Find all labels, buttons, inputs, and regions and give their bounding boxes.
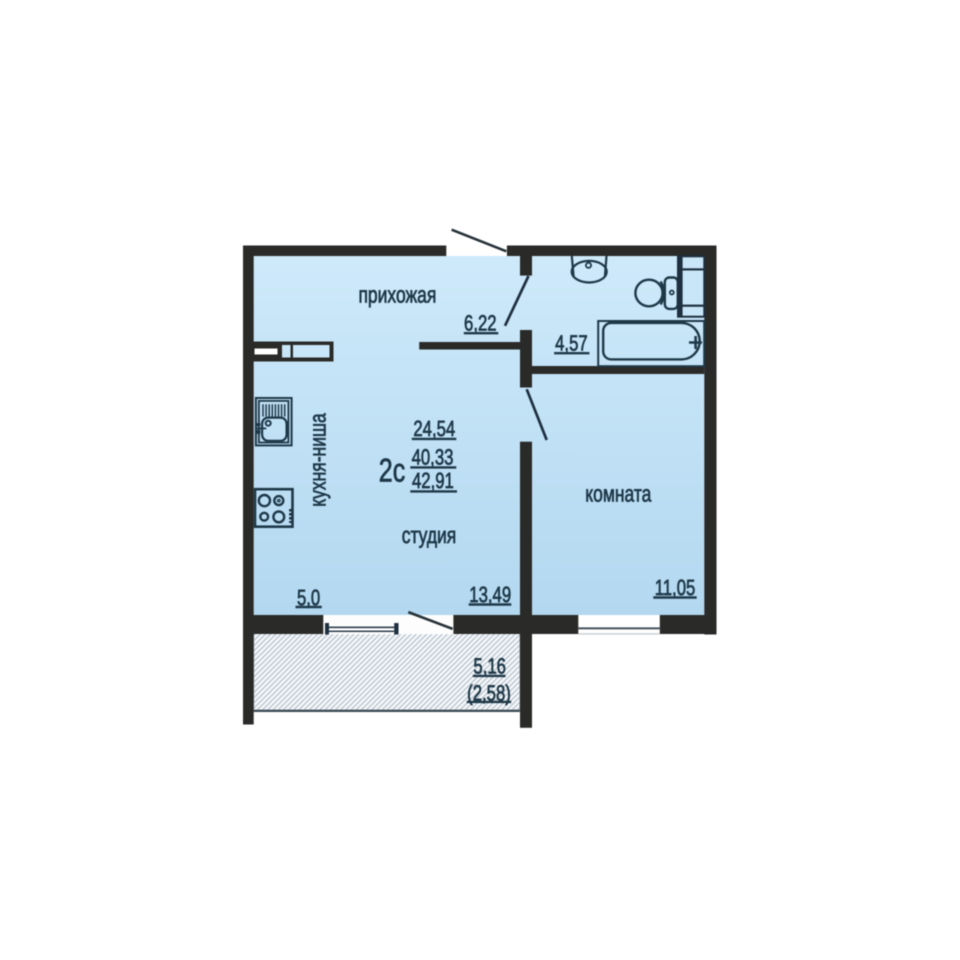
svg-text:5,16: 5,16 <box>473 653 506 678</box>
svg-text:11,05: 11,05 <box>655 575 696 600</box>
svg-text:13,49: 13,49 <box>469 582 511 607</box>
svg-text:24,54: 24,54 <box>413 416 455 441</box>
svg-text:2с: 2с <box>379 452 405 489</box>
svg-text:студия: студия <box>402 522 457 548</box>
svg-text:кухня-ниша: кухня-ниша <box>305 413 331 507</box>
svg-text:комната: комната <box>585 480 651 506</box>
svg-text:42,91: 42,91 <box>412 468 454 493</box>
svg-text:40,33: 40,33 <box>412 445 454 470</box>
svg-text:4,57: 4,57 <box>555 331 588 356</box>
svg-text:прихожая: прихожая <box>358 282 436 308</box>
svg-text:6,22: 6,22 <box>464 310 497 335</box>
